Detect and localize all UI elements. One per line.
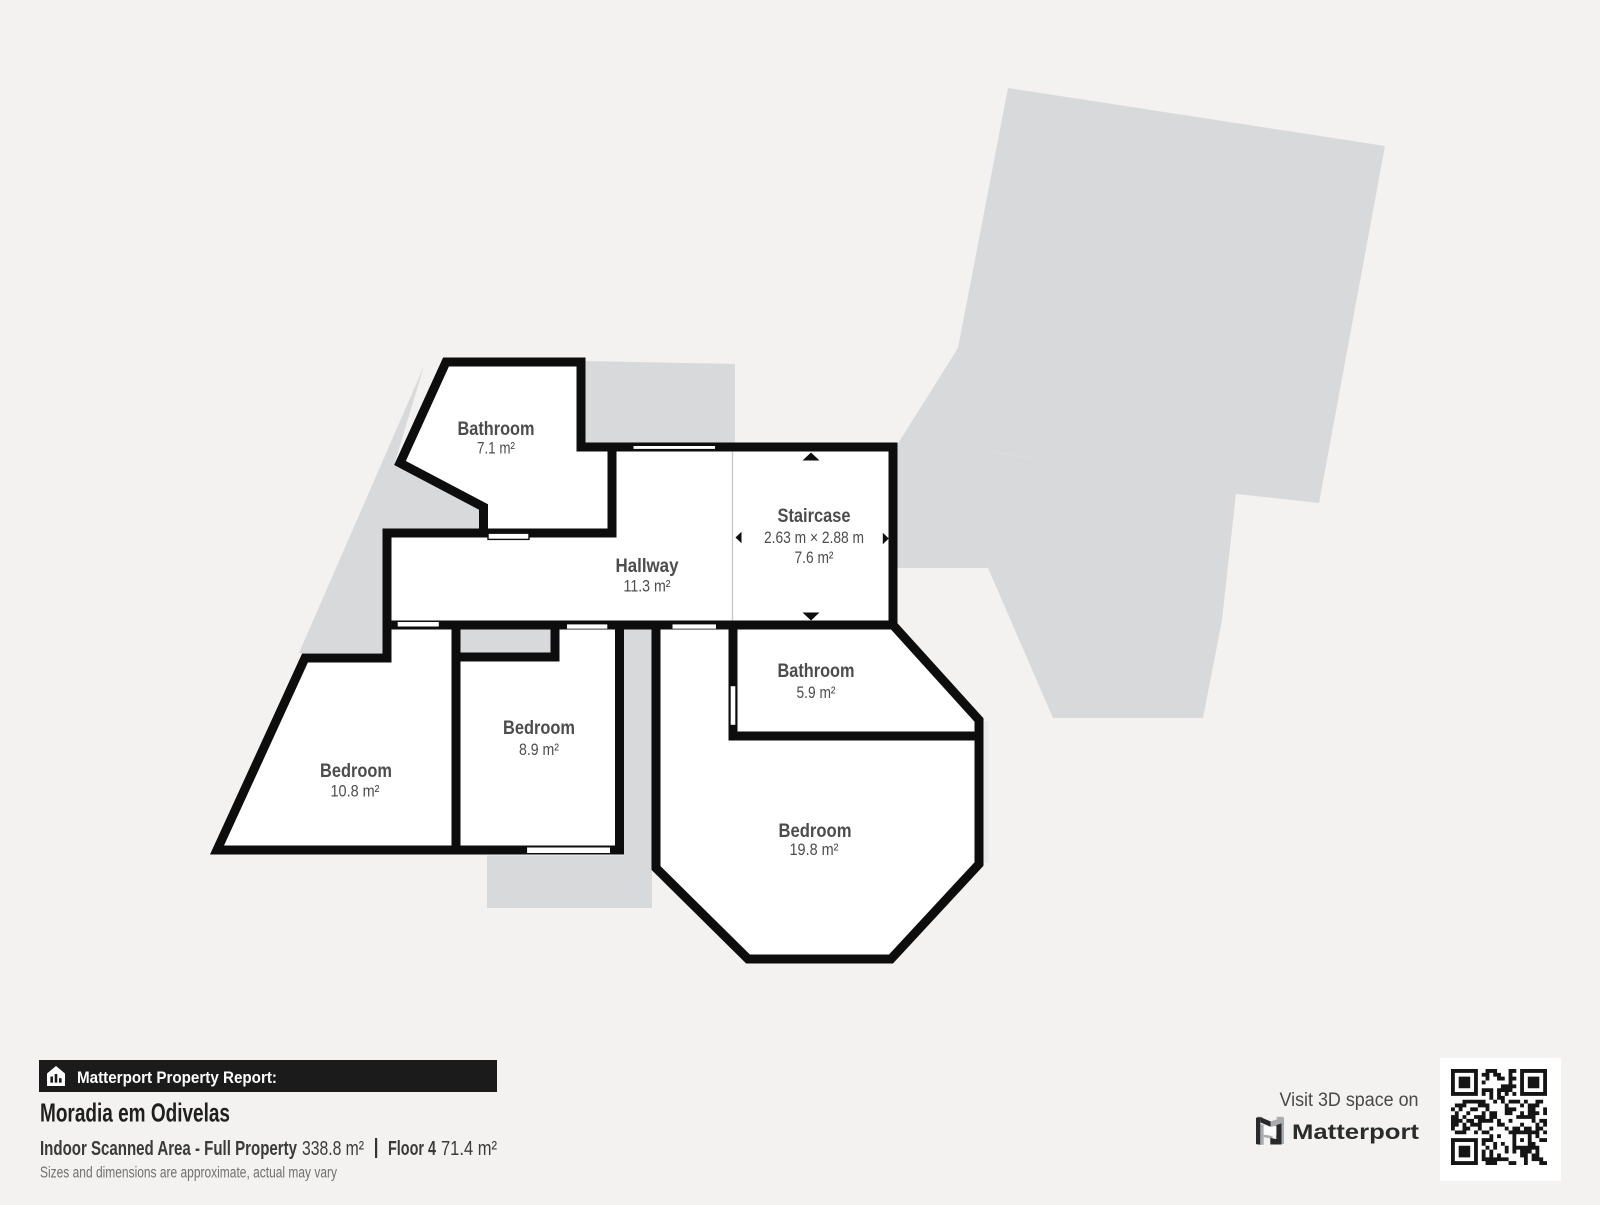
svg-text:Floor 4: Floor 4 bbox=[388, 1138, 437, 1160]
svg-text:Bathroom: Bathroom bbox=[458, 419, 535, 440]
svg-text:Moradia em Odivelas: Moradia em Odivelas bbox=[40, 1098, 230, 1128]
svg-text:7.1 m²: 7.1 m² bbox=[477, 440, 515, 458]
svg-text:Staircase: Staircase bbox=[778, 506, 851, 527]
svg-text:Bathroom: Bathroom bbox=[778, 661, 855, 682]
svg-text:Visit 3D space on: Visit 3D space on bbox=[1280, 1090, 1419, 1111]
svg-text:11.3 m²: 11.3 m² bbox=[624, 578, 671, 596]
svg-text:Bedroom: Bedroom bbox=[320, 761, 392, 782]
svg-text:Matterport Property Report:: Matterport Property Report: bbox=[77, 1068, 277, 1087]
svg-text:Bedroom: Bedroom bbox=[779, 821, 852, 842]
svg-text:7.6 m²: 7.6 m² bbox=[795, 549, 834, 567]
svg-text:5.9 m²: 5.9 m² bbox=[797, 684, 836, 702]
svg-text:Indoor Scanned Area - Full Pro: Indoor Scanned Area - Full Property bbox=[40, 1138, 298, 1160]
svg-text:8.9 m²: 8.9 m² bbox=[519, 741, 559, 759]
svg-text:19.8 m²: 19.8 m² bbox=[790, 841, 839, 859]
svg-text:10.8 m²: 10.8 m² bbox=[331, 783, 380, 801]
svg-text:Hallway: Hallway bbox=[616, 556, 679, 577]
svg-text:71.4 m²: 71.4 m² bbox=[441, 1138, 497, 1160]
svg-text:Bedroom: Bedroom bbox=[503, 718, 575, 739]
svg-text:338.8 m²: 338.8 m² bbox=[302, 1138, 364, 1160]
svg-text:Sizes and dimensions are appro: Sizes and dimensions are approximate, ac… bbox=[40, 1165, 337, 1182]
svg-text:Matterport: Matterport bbox=[1292, 1120, 1419, 1144]
svg-text:2.63 m × 2.88 m: 2.63 m × 2.88 m bbox=[764, 529, 864, 547]
